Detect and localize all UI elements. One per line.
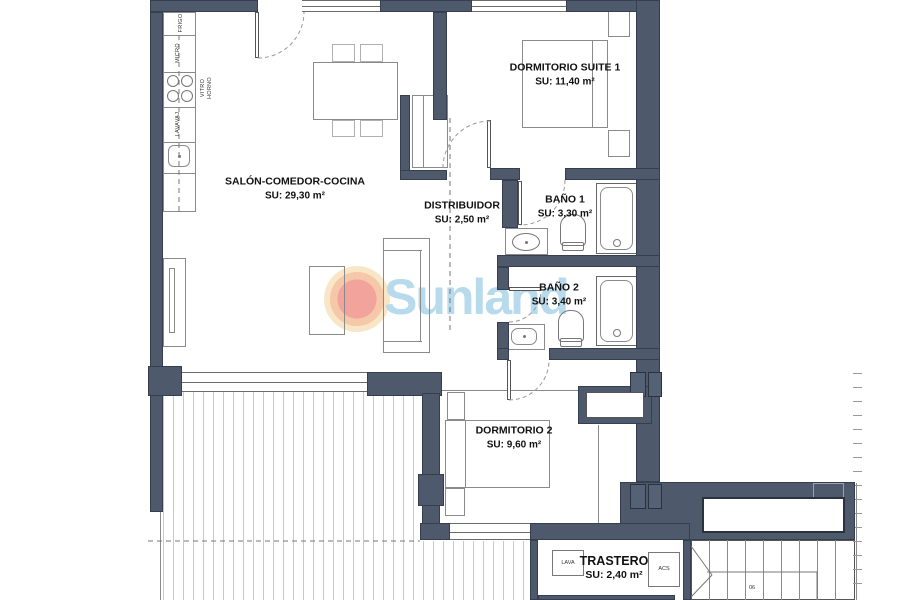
shower-drain xyxy=(613,239,621,247)
shower-drain xyxy=(613,329,621,337)
room-area: SU: 3,40 m² xyxy=(532,295,586,308)
sofa-arm-line xyxy=(384,250,422,251)
wall-salon-suite xyxy=(433,12,447,120)
stair-tread xyxy=(763,540,764,600)
dishwasher-label: LAVAVAJ xyxy=(175,112,181,137)
dimension-tick xyxy=(853,387,862,388)
corridor-line xyxy=(598,425,599,523)
door-leaf-dorm2 xyxy=(507,360,511,400)
room-name: BAÑO 2 xyxy=(532,282,586,296)
dimension-tick xyxy=(853,569,862,570)
hob-burner xyxy=(167,75,179,87)
room-name: DORMITORIO 2 xyxy=(476,425,553,439)
terrace-decking-upper xyxy=(163,392,422,541)
wall-dorm2-pier xyxy=(418,474,444,506)
door-leaf-suite xyxy=(487,120,491,168)
wall-dorm2-left xyxy=(422,393,440,540)
dimension-tick xyxy=(853,583,862,584)
room-area: SU: 2,40 m² xyxy=(580,569,649,583)
room-area: SU: 11,40 m² xyxy=(510,75,621,88)
nightstand xyxy=(447,392,465,420)
dimension-tick xyxy=(853,373,862,374)
dimension-tick xyxy=(853,415,862,416)
wardrobe-inner-dorm2 xyxy=(586,392,644,418)
room-area: SU: 9,60 m² xyxy=(476,438,553,451)
wall-bano2-bottom-1 xyxy=(497,348,509,360)
counter-divider xyxy=(163,35,196,36)
door-leaf-entrance xyxy=(255,12,259,58)
window-dorm2-bottom xyxy=(450,523,530,540)
room-label-distribuidor: DISTRIBUIDOR SU: 2,50 m² xyxy=(424,200,500,227)
sink-drain xyxy=(523,335,526,338)
hall-wardrobe-line xyxy=(423,96,424,167)
dining-chair xyxy=(360,44,383,62)
door-leaf-bano1 xyxy=(518,181,522,225)
toilet-bano2 xyxy=(558,310,584,351)
suite-door-arc xyxy=(443,121,490,168)
wall-trastero-top xyxy=(530,523,690,540)
tv-screen xyxy=(169,268,175,333)
dining-chair xyxy=(360,120,383,137)
counter-divider xyxy=(163,107,196,108)
room-name: SALÓN-COMEDOR-COCINA xyxy=(225,176,365,190)
stair-tread xyxy=(727,540,728,600)
nightstand xyxy=(608,130,630,157)
room-label-trastero: TRASTERO SU: 2,40 m² xyxy=(580,553,649,583)
hob-burner xyxy=(181,90,193,102)
nightstand xyxy=(445,488,465,516)
bed-pillow-line xyxy=(465,421,466,487)
staircase xyxy=(691,540,855,600)
fridge-label: FRIGO xyxy=(178,14,184,33)
pier xyxy=(648,484,662,509)
dining-table xyxy=(313,62,398,120)
elevator-box xyxy=(702,497,845,533)
wall-banos-divider xyxy=(497,255,660,267)
dimension-tick xyxy=(853,457,862,458)
room-name: DISTRIBUIDOR xyxy=(424,200,500,214)
toilet-tank xyxy=(560,338,582,347)
wall-bano2-bottom-2 xyxy=(549,348,660,360)
wall-left xyxy=(150,12,163,512)
wall-dorm2-bottom xyxy=(420,523,450,540)
wall-suite-bottom-2 xyxy=(565,168,660,180)
wall-trastero-bottom xyxy=(538,595,675,600)
window-salon-terrace xyxy=(182,372,367,392)
room-area: SU: 2,50 m² xyxy=(424,213,500,226)
hob-burner xyxy=(167,90,179,102)
dimension-tick xyxy=(853,443,862,444)
room-area: SU: 3,30 m² xyxy=(538,207,592,220)
wall-distribuidor-bano1 xyxy=(502,180,518,228)
room-area: SU: 29,30 m² xyxy=(225,189,365,202)
room-label-suite: DORMITORIO SUITE 1 SU: 11,40 m² xyxy=(510,62,621,89)
sink-drain xyxy=(178,155,181,158)
hob-label-line1: VITRO xyxy=(200,79,206,97)
room-name: TRASTERO xyxy=(580,553,649,569)
sofa-back-line xyxy=(420,250,421,341)
wall-trastero-right xyxy=(683,540,691,600)
microwave-label: MICRO xyxy=(175,43,181,63)
entrance-door-arc xyxy=(258,12,304,58)
room-name: BAÑO 1 xyxy=(538,194,592,208)
washer-label: LAVA xyxy=(561,560,574,566)
wall-top-left xyxy=(150,0,258,12)
water-heater-label: ACS xyxy=(658,566,669,572)
dimension-tick xyxy=(853,429,862,430)
dining-chair xyxy=(332,44,355,62)
dining-chair xyxy=(332,120,355,137)
wall-hall-vertical xyxy=(400,95,410,178)
hob-label-line2: HORNO xyxy=(207,77,213,99)
sink-drain xyxy=(525,241,528,244)
wall-trastero-left xyxy=(530,540,538,600)
dimension-tick xyxy=(853,471,862,472)
sofa xyxy=(383,238,430,353)
terrace-left-line xyxy=(160,512,161,600)
utility-box-outline xyxy=(813,483,844,498)
stair-number-label: 06 xyxy=(749,585,755,591)
wall-bano2-left-a xyxy=(497,267,509,290)
dimension-tick xyxy=(853,555,862,556)
wall-top-mid xyxy=(380,0,472,12)
coffee-table xyxy=(309,266,345,335)
window-salon-top xyxy=(302,0,380,12)
dimension-tick xyxy=(853,541,862,542)
wall-suite-bottom-1 xyxy=(490,168,520,180)
terrace-decking-lower xyxy=(163,541,530,600)
pier xyxy=(630,484,646,509)
counter-divider xyxy=(163,173,196,174)
room-name: DORMITORIO SUITE 1 xyxy=(510,62,621,76)
wall-hall-horizontal xyxy=(400,170,447,180)
stair-tread xyxy=(745,540,746,600)
floor-plan-canvas: Sunland ® SALÓN-COMEDOR-COCINA xyxy=(0,0,900,600)
stair-tread xyxy=(709,540,710,600)
dimension-tick xyxy=(853,401,862,402)
stair-tread xyxy=(781,540,782,600)
counter-divider xyxy=(163,72,196,73)
room-label-salon: SALÓN-COMEDOR-COCINA SU: 29,30 m² xyxy=(225,176,365,203)
sofa-arm-line xyxy=(384,341,422,342)
room-label-bano2: BAÑO 2 SU: 3,40 m² xyxy=(532,282,586,309)
toilet-tank xyxy=(562,242,584,251)
stair-tread xyxy=(835,540,836,600)
hob-burner xyxy=(181,75,193,87)
room-label-bano1: BAÑO 1 SU: 3,30 m² xyxy=(538,194,592,221)
stair-tread xyxy=(817,540,818,600)
counter-divider xyxy=(163,142,196,143)
dorm2-door-arc xyxy=(509,360,549,400)
stair-tread xyxy=(799,540,800,600)
window-suite-top xyxy=(472,0,566,12)
pier xyxy=(648,372,662,397)
wall-corner-block xyxy=(148,366,182,396)
room-label-dorm2: DORMITORIO 2 SU: 9,60 m² xyxy=(476,425,553,452)
nightstand xyxy=(608,10,630,37)
